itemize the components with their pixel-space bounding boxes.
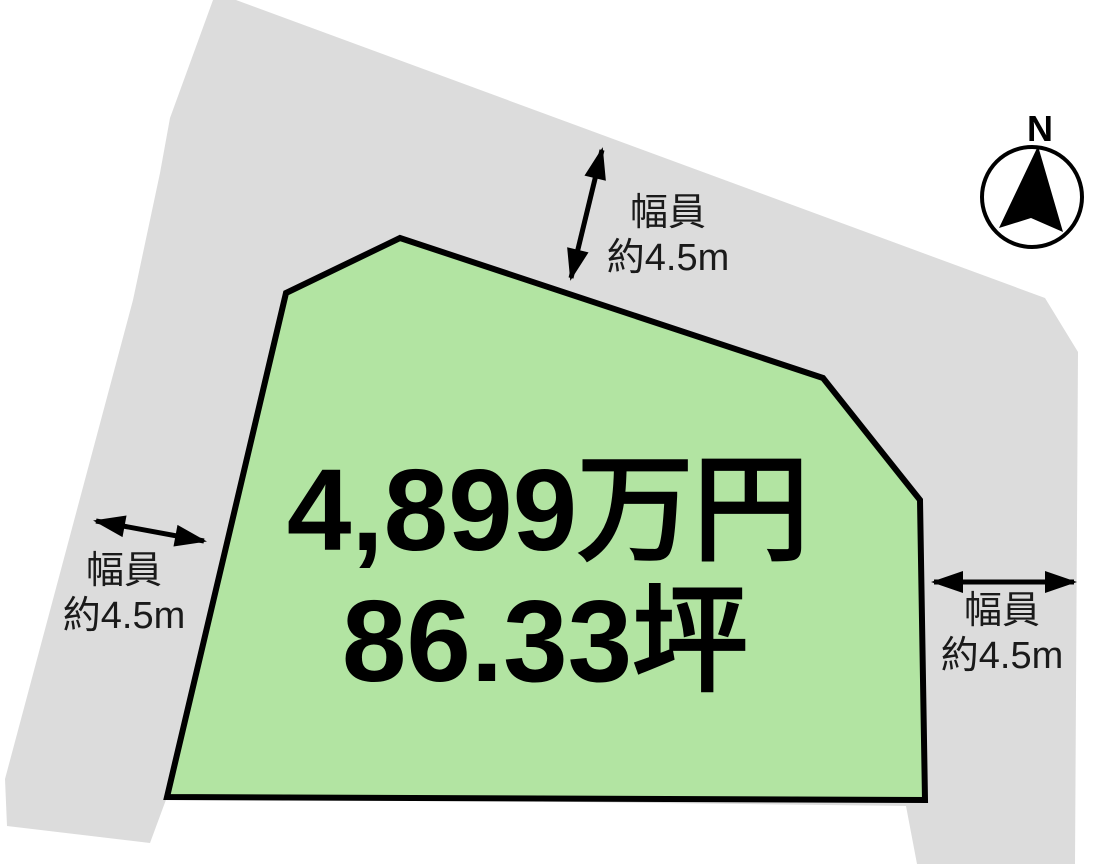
north-label: N <box>1027 108 1053 150</box>
road-width-label-top-line2: 約4.5m <box>607 236 729 281</box>
plot-price: 4,899万円 <box>287 452 809 568</box>
compass <box>982 146 1082 247</box>
road-width-label-top-line1: 幅員 <box>607 191 729 236</box>
site-plan-diagram: 4,899万円 86.33坪 幅員 約4.5m 幅員 約4.5m 幅員 約4.5… <box>0 0 1099 864</box>
road-width-label-right-line1: 幅員 <box>941 589 1063 634</box>
road-width-label-left-line2: 約4.5m <box>63 594 185 639</box>
road-width-label-left-line1: 幅員 <box>63 549 185 594</box>
road-width-label-right-line2: 約4.5m <box>941 634 1063 679</box>
site-plan-svg <box>0 0 1099 864</box>
road-width-label-left: 幅員 約4.5m <box>63 549 185 639</box>
road-width-label-right: 幅員 約4.5m <box>941 589 1063 679</box>
plot-area-size: 86.33坪 <box>342 583 748 699</box>
road-width-label-top: 幅員 約4.5m <box>607 191 729 281</box>
